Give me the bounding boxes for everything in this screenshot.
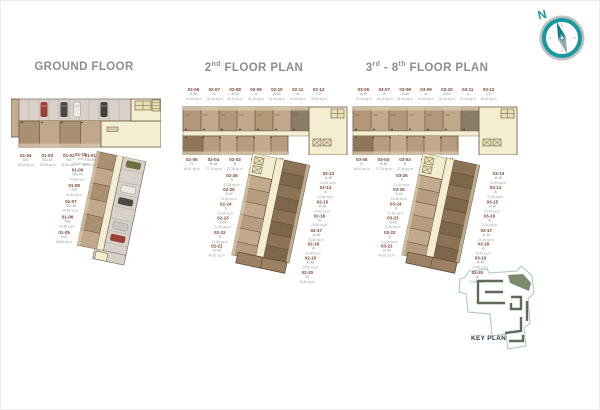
unit-label: 03-21 D-M 40.61 sq.m: [374, 244, 400, 258]
unit-area: 27.38 sq.m: [227, 167, 243, 171]
unit-label: 02-22 S 21.84 sq.m: [207, 229, 233, 243]
unit-type: A-M: [483, 233, 490, 238]
unit-area: 34.88 sq.m: [60, 225, 76, 229]
unit-label: 02-14 A 24.46 sq.m: [312, 185, 338, 199]
tower-bar-drawing: [351, 105, 519, 155]
plan-second-floor: 2nd FLOOR PLAN 02-06 A-M 24.46 sq.m 02-0…: [179, 59, 354, 359]
unit-area: 46.61 sq.m: [184, 167, 200, 171]
reception-desk: [107, 127, 118, 132]
core-section: [479, 107, 517, 155]
unit-area: 27.38 sq.m: [205, 167, 221, 171]
highlighted-building: [508, 274, 531, 291]
unit-type: A-M: [313, 233, 320, 238]
unit-label: 02-24 S 21.84 sq.m: [213, 201, 239, 215]
unit-label: 02-13 A-M 24.46 sq.m: [315, 171, 341, 185]
unit-label: 03-23 S-M 21.84 sq.m: [380, 215, 406, 229]
compass: N: [531, 5, 591, 65]
second-floor-drawing: [179, 59, 354, 155]
unit-area: 48.88 sq.m: [18, 163, 34, 167]
top-unit-band: [353, 107, 479, 131]
unit-label: 03-26 S 21.84 sq.m: [389, 173, 415, 187]
plan-ground-floor: GROUND FLOOR: [9, 59, 179, 274]
unit-label: 03-05 D 46.61 sq.m: [351, 157, 373, 171]
unit-label: 03-18 A 24.46 sq.m: [470, 242, 496, 256]
unit-label: 02-18 A 24.46 sq.m: [300, 242, 326, 256]
unit-label: 02-17 A-M 24.46 sq.m: [303, 227, 329, 241]
unit-type: S: [219, 235, 222, 240]
unit-label: 03-24 S 21.84 sq.m: [383, 201, 409, 215]
unit-label: 01-08 SG 34.88 sq.m: [62, 183, 86, 199]
floor-plans-sheet: N GROUND FLOOR: [0, 0, 600, 410]
key-plan-label: KEY PLAN: [471, 335, 506, 342]
car-icon: [101, 102, 108, 117]
key-plan: KEY PLAN: [453, 261, 553, 366]
car-icon: [61, 102, 68, 117]
unit-area: 48.88 sq.m: [56, 240, 72, 244]
unit-label: 01-07 SG-M 34.88 sq.m: [59, 199, 83, 215]
unit-label: 03-03 B 27.38 sq.m: [394, 157, 416, 171]
unit-label: 02-15 A-M 24.46 sq.m: [309, 199, 335, 213]
unit-type: S: [389, 235, 392, 240]
unit-area: 34.88 sq.m: [66, 193, 82, 197]
unit-label: 02-16 A 24.46 sq.m: [306, 213, 332, 227]
unit-label: 03-16 A 24.46 sq.m: [476, 213, 502, 227]
wing-core: [418, 153, 446, 180]
unit-label: 02-25 S-M 21.84 sq.m: [216, 187, 242, 201]
car-icon: [41, 102, 48, 117]
unit-label: 02-05 D 46.61 sq.m: [181, 157, 203, 171]
unit-label: 03-22 S 21.84 sq.m: [377, 229, 403, 243]
unit-area: 34.88 sq.m: [70, 178, 86, 182]
bottom-unit-band: [353, 136, 458, 155]
unit-label: 03-15 A-M 24.46 sq.m: [479, 199, 505, 213]
building-outlines: [478, 281, 527, 341]
unit-area: 27.38 sq.m: [397, 167, 413, 171]
unit-label: 03-17 A-M 24.46 sq.m: [473, 227, 499, 241]
core-section: [309, 107, 347, 155]
plan-title-ground: GROUND FLOOR: [29, 61, 139, 73]
unit-label: 01-09 SG-M 34.88 sq.m: [65, 167, 89, 183]
compass-north-label: N: [536, 7, 548, 23]
unit-label: 02-26 S 21.84 sq.m: [219, 173, 245, 187]
ground-wing: 01-10 SG 34.88 sq.m 01-09 SG-M 34.88 sq.…: [75, 151, 148, 267]
unit-area: 40.61 sq.m: [379, 254, 395, 258]
unit-label: 02-04 B-M 27.38 sq.m: [203, 157, 225, 171]
unit-label: 02-23 S-M 21.84 sq.m: [210, 215, 236, 229]
unit-label: 02-20 A 24.46 sq.m: [294, 270, 320, 284]
compass-icon: N: [531, 5, 591, 65]
unit-area: 40.61 sq.m: [209, 254, 225, 258]
unit-label: 03-13 A-M 24.46 sq.m: [485, 171, 511, 185]
unit-label: 03-04 B-M 27.38 sq.m: [373, 157, 395, 171]
unit-label: 02-03 B 27.38 sq.m: [224, 157, 246, 171]
unit-area: 46.61 sq.m: [354, 167, 370, 171]
unit-area: 34.88 sq.m: [39, 163, 55, 167]
unit-label: 03-25 S-M 21.84 sq.m: [386, 187, 412, 201]
wing-core: [248, 153, 276, 180]
unit-area: 27.38 sq.m: [375, 167, 391, 171]
unit-label: 01-03 SG-M 34.88 sq.m: [37, 153, 59, 167]
plan-title-text: GROUND FLOOR: [34, 61, 133, 73]
top-unit-band: [183, 107, 309, 131]
unit-label: 01-06 SG 34.88 sq.m: [56, 214, 80, 230]
unit-type: A: [306, 275, 309, 280]
unit-label: 01-10 SG 34.88 sq.m: [69, 152, 93, 168]
unit-label: 01-04 DG 48.88 sq.m: [15, 153, 37, 167]
unit-label: 01-05 DG 48.88 sq.m: [52, 230, 76, 246]
ground-unit-band: [19, 121, 101, 147]
third-floor-drawing: [349, 59, 524, 155]
ground-bar-drawing: [11, 97, 161, 149]
unit-area: 34.88 sq.m: [63, 209, 79, 213]
unit-area: 34.88 sq.m: [73, 162, 89, 166]
unit-area: 24.46 sq.m: [299, 280, 315, 284]
unit-label: 02-21 D-M 40.61 sq.m: [204, 244, 230, 258]
unit-label: 03-14 A 24.46 sq.m: [482, 185, 508, 199]
bottom-unit-band: [183, 136, 288, 155]
car-icon: [74, 102, 81, 117]
tower-bar-drawing: [181, 105, 349, 155]
unit-label: 02-19 A-M 24.46 sq.m: [297, 256, 323, 270]
